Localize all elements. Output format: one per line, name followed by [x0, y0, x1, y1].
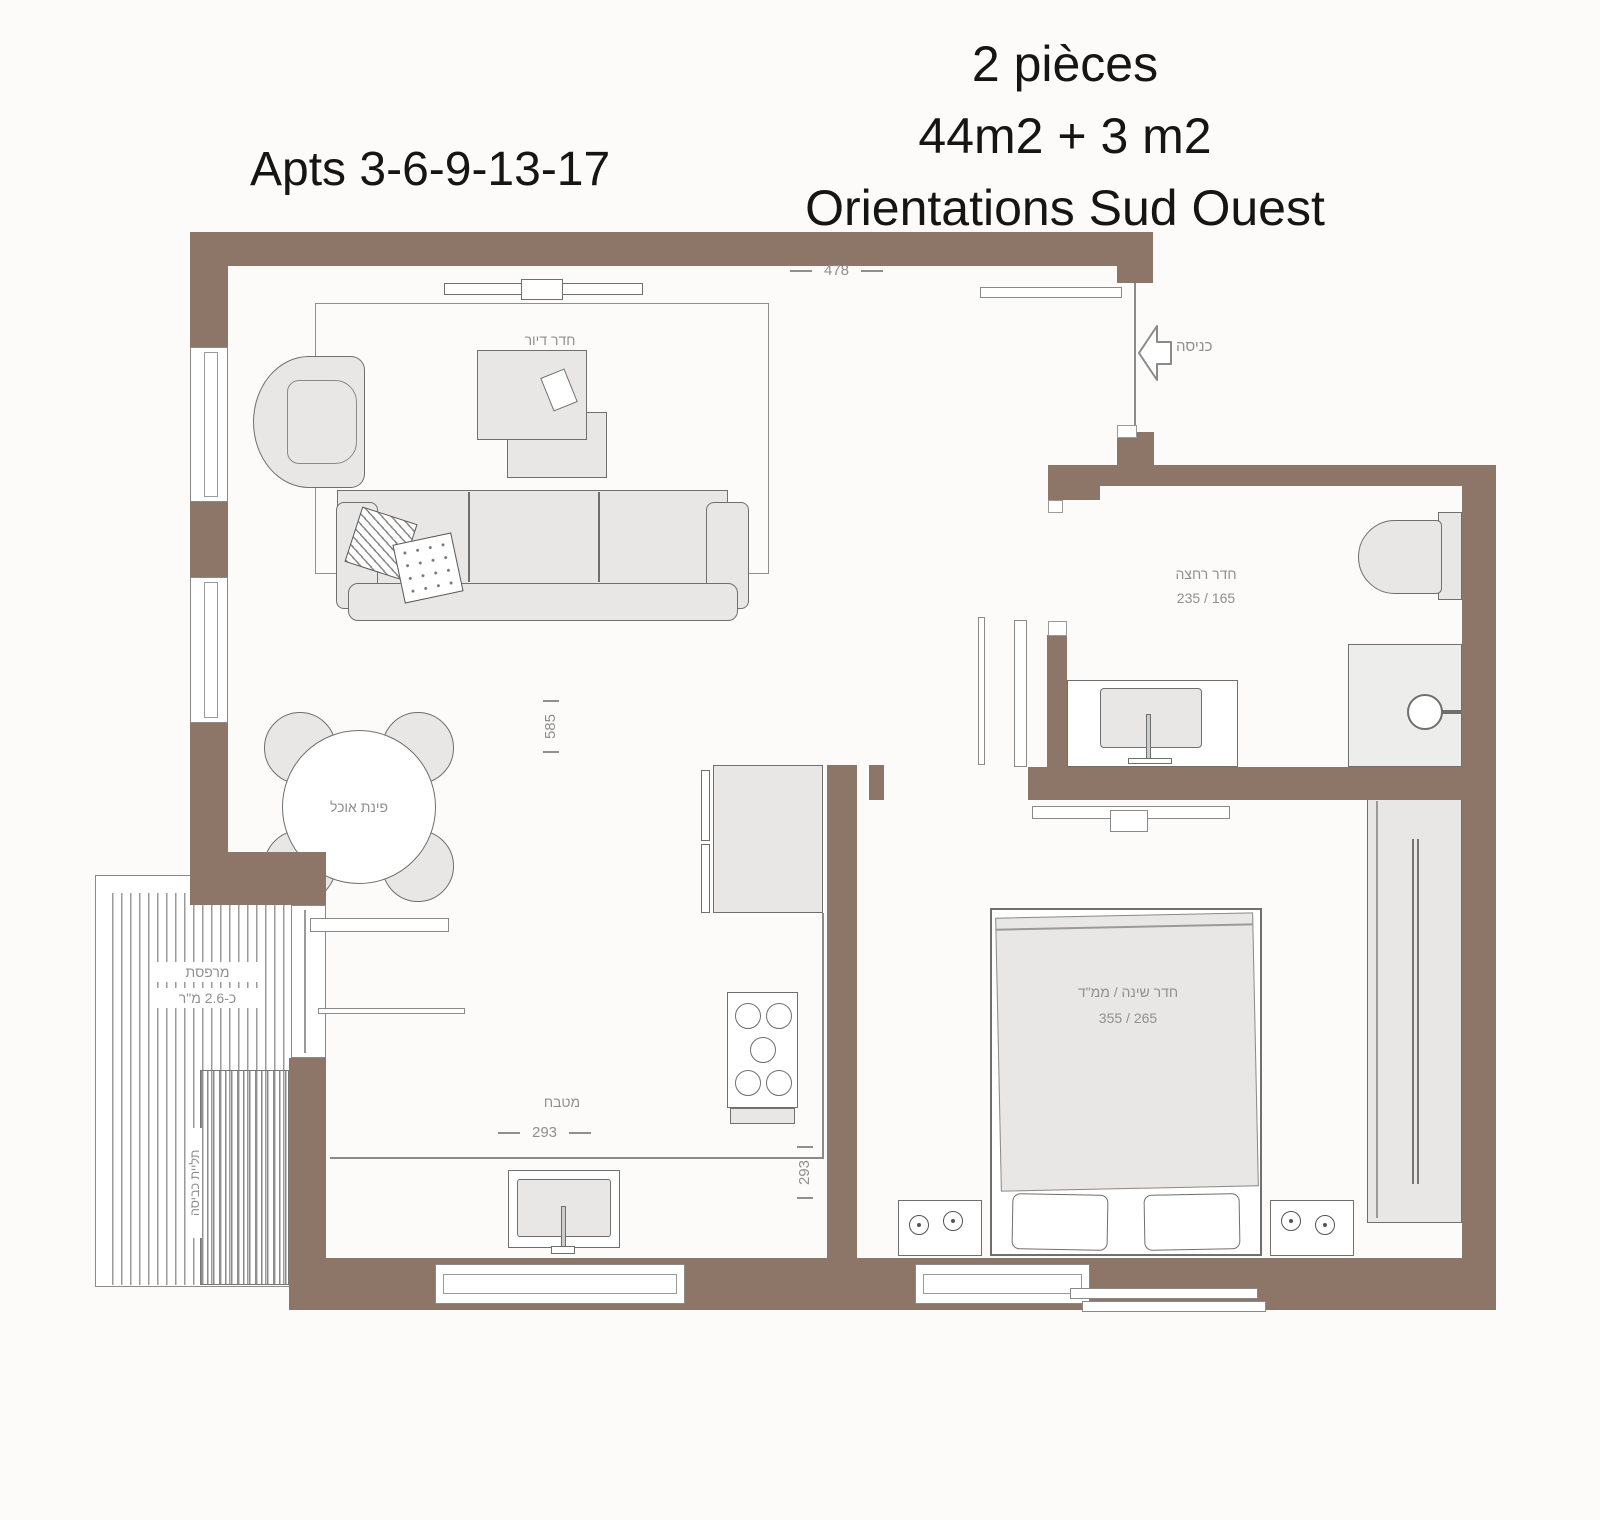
sofa-pillow-dotted: [392, 532, 463, 603]
window-kitchen-pane: [443, 1274, 677, 1294]
wall-left-b: [190, 502, 228, 577]
kitchen-counter-edge-h: [330, 1157, 824, 1159]
bathroom-dims-label: 235 / 165: [1136, 590, 1276, 606]
kitchen-counter-edge-v: [822, 913, 824, 1159]
wall-left-a: [190, 266, 228, 347]
wall-bathroom-left: [1047, 635, 1067, 767]
window-living-1-pane: [204, 352, 218, 497]
bathroom-label: חדר רחצה: [1136, 566, 1276, 582]
bedroom-sliding-door-leaf-2: [1082, 1301, 1266, 1312]
entry-sliding-door: [980, 287, 1122, 298]
kitchen-label: מטבח: [512, 1094, 612, 1110]
wall-balcony-right: [289, 1058, 326, 1258]
window-living-2-pane: [204, 582, 218, 718]
bathroom-sink: [1100, 688, 1202, 748]
toilet-bowl: [1358, 520, 1442, 594]
tv-bedroom-mount: [1110, 810, 1148, 832]
tv-living-mount: [521, 279, 563, 300]
wardrobe-door-line-2: [1417, 839, 1419, 1184]
dim-living-height: 585: [542, 700, 559, 753]
dining-label: פינת אוכל: [330, 799, 388, 815]
jamb-entry: [1117, 425, 1137, 438]
nightstand-right: [1270, 1200, 1354, 1256]
shower-drain: [1407, 694, 1443, 730]
jamb-bath-top: [1048, 500, 1063, 513]
wall-left-c: [190, 723, 228, 852]
wall-right: [1462, 465, 1496, 1310]
bathroom-pocket-door: [1014, 620, 1027, 767]
sofa-cushion-divider-1: [468, 492, 470, 582]
bathroom-faucet-base: [1128, 758, 1172, 764]
living-room-label: חדר דיור: [490, 332, 610, 348]
window-bedroom-pane: [923, 1274, 1082, 1294]
bedroom-dims-label: 355 / 265: [1038, 1010, 1218, 1026]
entrance-label: כניסה: [1176, 338, 1240, 355]
bed-duvet-fold: [996, 923, 1252, 930]
balcony-label: מרפסת: [150, 962, 265, 982]
page-title-apartments: Apts 3-6-9-13-17: [250, 142, 610, 197]
wall-bathroom-top-left: [1048, 465, 1100, 500]
bed-pillow-left: [1012, 1193, 1109, 1251]
title-rooms-count: 2 pièces: [700, 28, 1430, 100]
kitchen-cabinet-door-1: [701, 770, 710, 841]
wall-bathroom-top: [1100, 465, 1462, 486]
balcony-laundry-area: [200, 1070, 289, 1285]
wall-kitchen-bedroom: [827, 765, 857, 1258]
entrance-arrow-icon: [1137, 320, 1173, 386]
bed-pillow-right: [1144, 1193, 1241, 1251]
kitchen-cabinet-door-2: [701, 844, 710, 913]
jamb-bath-door: [1048, 621, 1067, 636]
bedroom-label: חדר שינה / ממ"ד: [1038, 984, 1218, 1000]
dim-kitchen-depth: 293: [796, 1146, 813, 1199]
wardrobe-door-line-1: [1412, 839, 1414, 1184]
bathroom-door-track: [978, 617, 985, 765]
wall-kitchen-step: [869, 765, 884, 800]
wardrobe-edge-line: [1376, 801, 1378, 1218]
bathroom-faucet: [1146, 714, 1151, 764]
sofa-cushion-divider-2: [598, 492, 600, 582]
shower-handle: [1441, 710, 1462, 714]
wall-balcony-stub: [190, 852, 326, 905]
wardrobe: [1367, 798, 1462, 1223]
page-title-block: 2 pièces 44m2 + 3 m2 Orientations Sud Ou…: [700, 28, 1430, 244]
nightstand-left: [898, 1200, 982, 1256]
bedroom-sliding-door-leaf-1: [1070, 1288, 1258, 1299]
dim-top-width: 478: [790, 262, 883, 279]
armchair-cushion: [287, 380, 357, 464]
balcony-door-line: [304, 910, 306, 1053]
balcony-area-label: כ-2.6 מ"ר: [150, 988, 265, 1008]
dim-kitchen-width: 293: [498, 1124, 591, 1141]
kitchen-fridge: [713, 765, 823, 913]
entry-wall-line: [1134, 283, 1136, 432]
bed-duvet: [995, 912, 1259, 1191]
balcony-sliding-leaf: [310, 918, 449, 932]
kitchen-stove-panel: [730, 1108, 795, 1124]
wall-bathroom-bottom: [1028, 767, 1462, 800]
balcony-door-track: [318, 1008, 465, 1014]
kitchen-stove: [727, 992, 798, 1108]
title-orientation: Orientations Sud Ouest: [700, 172, 1430, 244]
title-area: 44m2 + 3 m2: [700, 100, 1430, 172]
floorplan-page: { "titles": { "left": "Apts 3-6-9-13-17"…: [0, 0, 1600, 1520]
balcony-laundry-label: תליית כביסה: [188, 1128, 202, 1238]
shower: [1348, 644, 1462, 767]
kitchen-faucet-base: [551, 1246, 575, 1254]
